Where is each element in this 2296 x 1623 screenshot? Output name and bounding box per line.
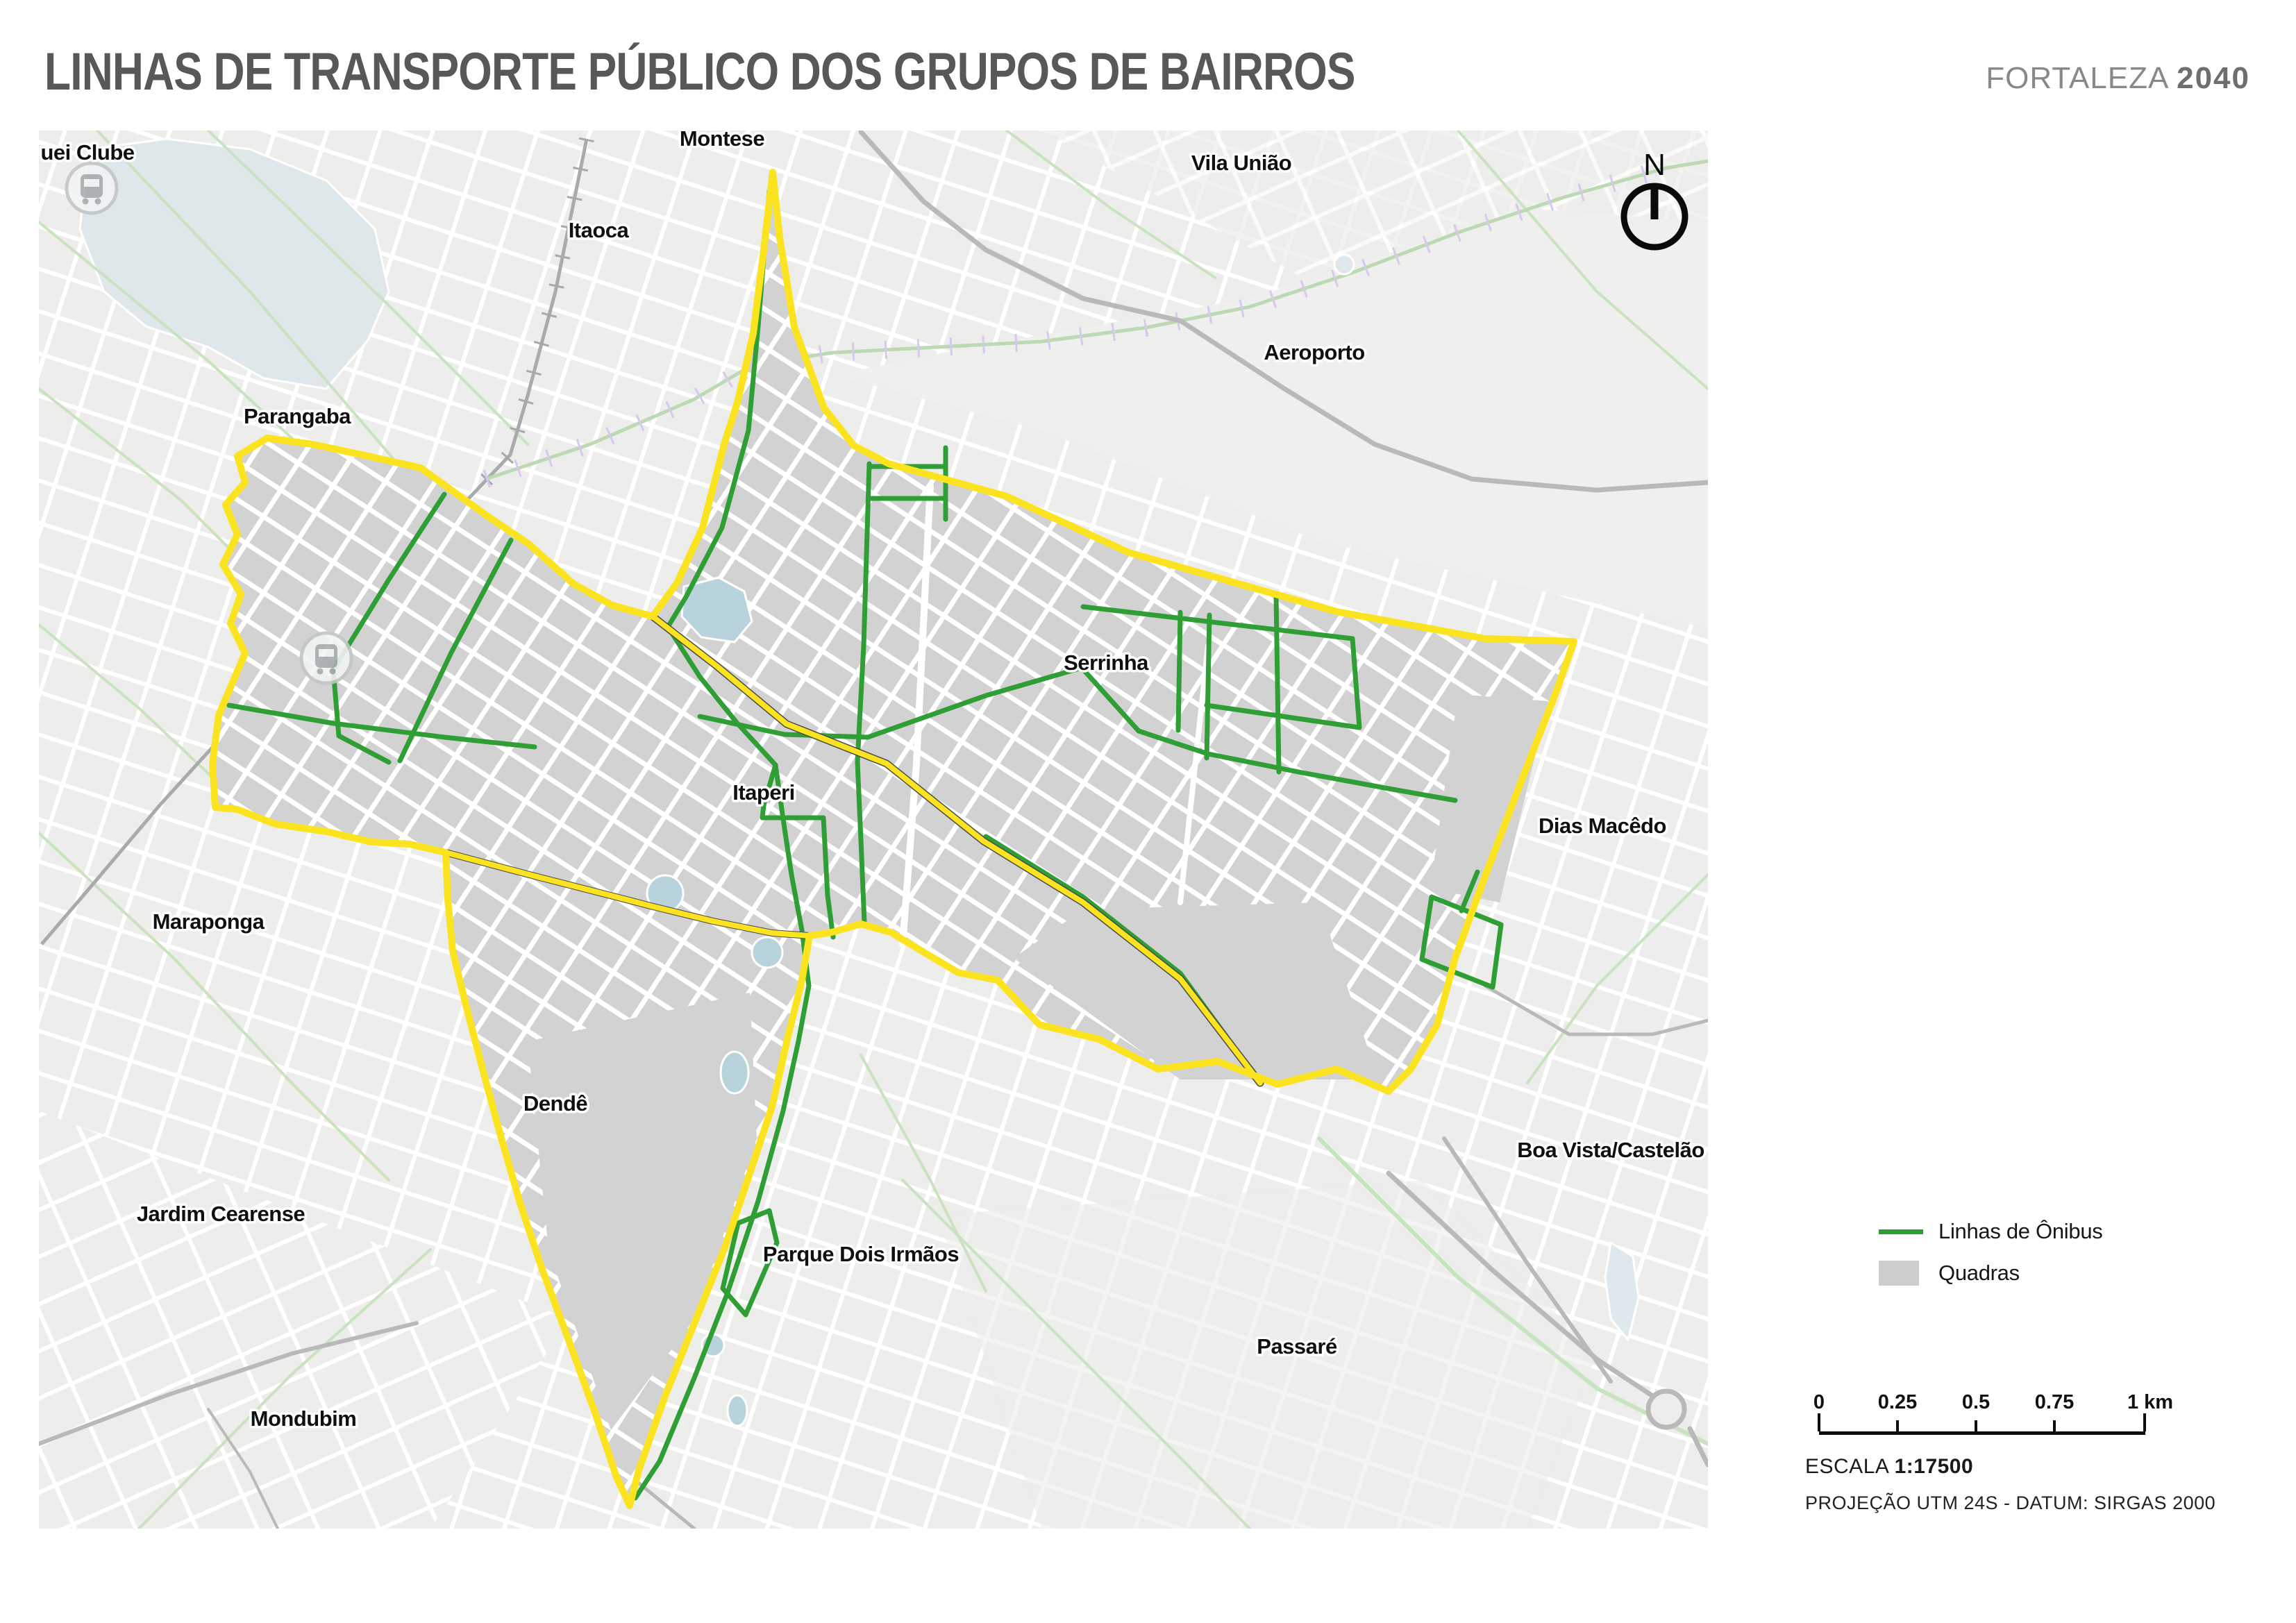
label-mondubim: Mondubim	[251, 1406, 357, 1431]
scale-text: ESCALA 1:17500	[1805, 1455, 1973, 1479]
scale-tick-label: 1 km	[2127, 1391, 2173, 1414]
brand-name: FORTALEZA	[1986, 61, 2168, 95]
brand-year: 2040	[2177, 61, 2250, 95]
scale-tick-label: 0	[1813, 1391, 1825, 1414]
legend-label: Quadras	[1938, 1261, 2020, 1286]
legend-item-bus-lines: Linhas de Ônibus	[1879, 1216, 2102, 1247]
scale-value: 1:17500	[1895, 1455, 1974, 1478]
bus-station-icon	[67, 163, 117, 213]
map-canvas: N uei ClubeMonteseItaocaVila UniãoAeropo…	[39, 131, 1708, 1529]
scale-tick-label: 0.5	[1962, 1391, 1990, 1414]
legend-label: Linhas de Ônibus	[1938, 1219, 2102, 1244]
scale-bar-line	[1819, 1431, 2145, 1435]
label-dende: Dendê	[523, 1091, 588, 1116]
scale-tick	[1975, 1420, 1977, 1431]
label-vila-uniao: Vila União	[1191, 151, 1291, 175]
roundabout	[1648, 1391, 1684, 1427]
label-joquei-clube: uei Clube	[40, 140, 134, 165]
bus-station-icon	[301, 633, 351, 683]
label-boa-vista-castelao: Boa Vista/Castelão	[1517, 1138, 1704, 1162]
scale-tick-label: 0.25	[1878, 1391, 1917, 1414]
scale-tick	[2143, 1413, 2146, 1431]
label-itaperi: Itaperi	[732, 780, 795, 805]
legend-item-quadras: Quadras	[1879, 1258, 2102, 1288]
label-aeroporto: Aeroporto	[1264, 340, 1364, 364]
brand-logo: FORTALEZA 2040	[1986, 61, 2250, 96]
label-parque-dois-irmaos: Parque Dois Irmãos	[763, 1242, 959, 1266]
page-title: LINHAS DE TRANSPORTE PÚBLICO DOS GRUPOS …	[44, 42, 1355, 102]
projection-text: PROJEÇÃO UTM 24S - DATUM: SIRGAS 2000	[1805, 1492, 2215, 1514]
quadras-swatch-icon	[1879, 1261, 1919, 1286]
label-jardim-cearense: Jardim Cearense	[137, 1202, 305, 1226]
label-itaoca: Itaoca	[569, 218, 630, 242]
bus-line-swatch-icon	[1879, 1229, 1923, 1234]
north-label: N	[1643, 148, 1666, 182]
label-montese: Montese	[680, 131, 765, 151]
label-maraponga: Maraponga	[153, 909, 265, 934]
map-legend: Linhas de Ônibus Quadras	[1879, 1216, 2102, 1300]
scale-bar: 00.250.50.751 km ESCALA 1:17500 PROJEÇÃO…	[1805, 1391, 2194, 1544]
scale-prefix: ESCALA	[1805, 1455, 1888, 1478]
label-parangaba: Parangaba	[244, 404, 351, 428]
scale-tick-label: 0.75	[2035, 1391, 2074, 1414]
scale-tick	[1896, 1420, 1899, 1431]
map-svg: N uei ClubeMonteseItaocaVila UniãoAeropo…	[39, 131, 1708, 1529]
label-passare: Passaré	[1257, 1334, 1337, 1359]
scale-tick	[2053, 1420, 2056, 1431]
scale-tick	[1818, 1413, 1820, 1431]
label-dias-macedo: Dias Macêdo	[1539, 814, 1666, 838]
label-serrinha: Serrinha	[1064, 650, 1149, 675]
